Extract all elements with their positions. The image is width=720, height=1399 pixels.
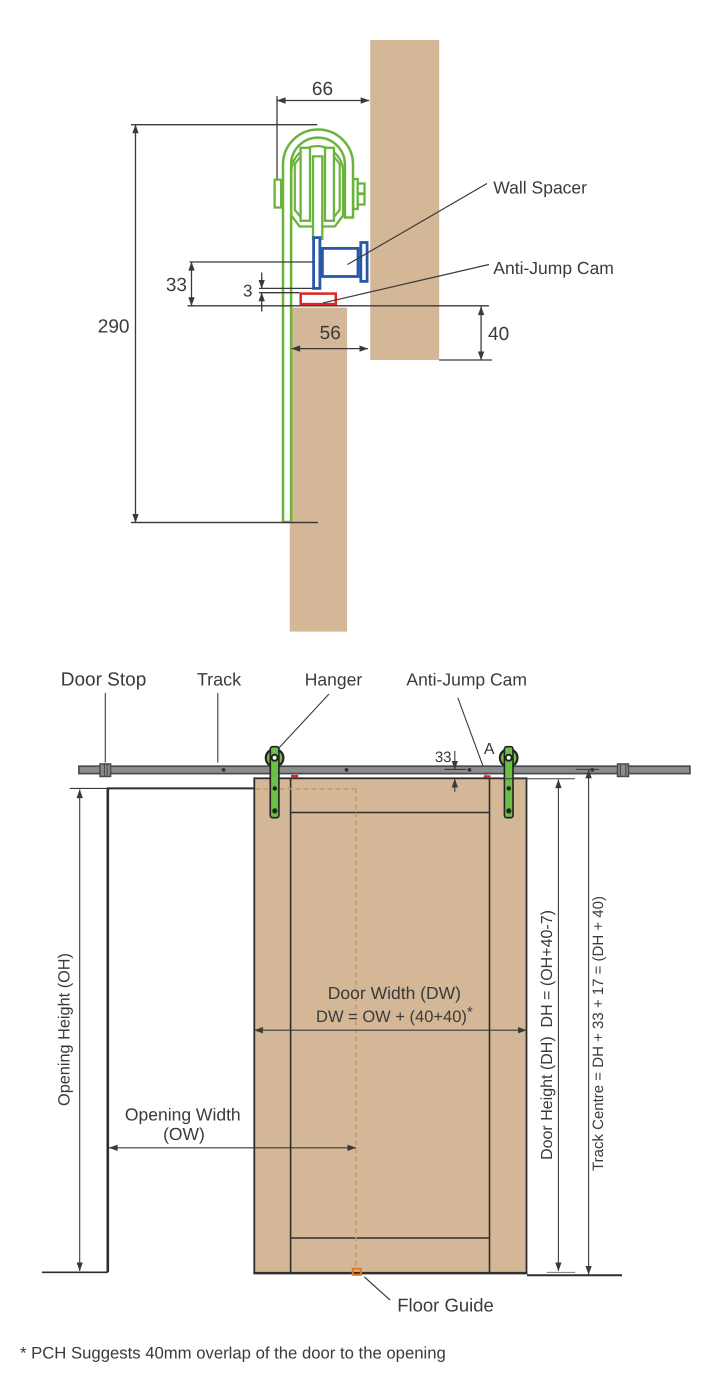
svg-text:40: 40 bbox=[488, 324, 509, 345]
svg-text:56: 56 bbox=[320, 323, 341, 344]
svg-text:3: 3 bbox=[243, 281, 252, 300]
svg-text:Door Stop: Door Stop bbox=[61, 670, 147, 691]
svg-text:33: 33 bbox=[166, 275, 187, 296]
svg-text:Door Height (DH) DH = (OH+40-: Door Height (DH) DH = (OH+40-7) bbox=[539, 910, 556, 1160]
svg-text:Hanger: Hanger bbox=[305, 670, 363, 690]
svg-text:DW = OW + (40+40)*: DW = OW + (40+40)* bbox=[316, 1004, 473, 1026]
svg-text:Track Centre = DH + 33 + 17 =: Track Centre = DH + 33 + 17 = (DH + 40) bbox=[590, 896, 607, 1171]
svg-text:Wall Spacer: Wall Spacer bbox=[493, 178, 587, 198]
svg-text:290: 290 bbox=[98, 317, 130, 338]
svg-text:A: A bbox=[484, 741, 495, 758]
svg-text:Opening Height (OH): Opening Height (OH) bbox=[56, 953, 74, 1106]
svg-text:Anti-Jump Cam: Anti-Jump Cam bbox=[493, 258, 614, 278]
svg-text:33: 33 bbox=[435, 749, 452, 766]
svg-text:Track: Track bbox=[197, 670, 242, 690]
svg-text:Door Width (DW): Door Width (DW) bbox=[328, 983, 461, 1003]
svg-text:Floor Guide: Floor Guide bbox=[397, 1295, 494, 1316]
svg-text:(OW): (OW) bbox=[163, 1124, 205, 1144]
svg-text:Opening Width: Opening Width bbox=[125, 1105, 241, 1125]
svg-text:Anti-Jump Cam: Anti-Jump Cam bbox=[406, 670, 527, 690]
svg-text:* PCH Suggests 40mm overlap of: * PCH Suggests 40mm overlap of the door … bbox=[20, 1344, 446, 1363]
svg-text:66: 66 bbox=[312, 79, 333, 100]
